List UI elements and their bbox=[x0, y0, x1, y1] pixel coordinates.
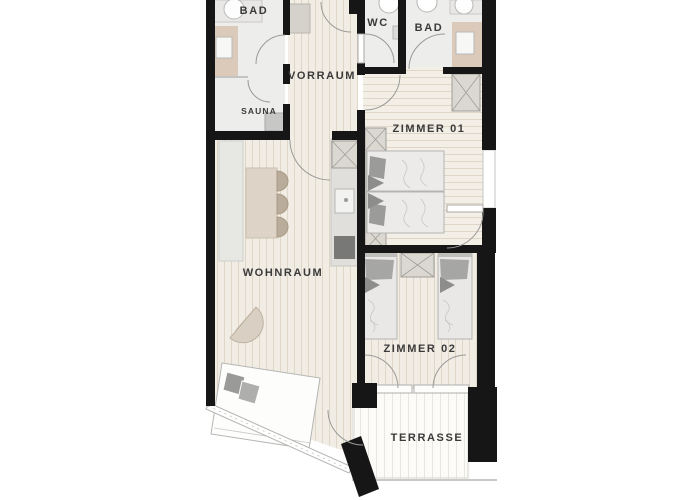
wall-terrace-left bbox=[352, 383, 377, 408]
wardrobe bbox=[452, 74, 480, 111]
wall-left-outer bbox=[206, 0, 215, 406]
shower-fixture bbox=[216, 37, 232, 58]
wall bbox=[283, 0, 290, 35]
nightstand bbox=[365, 128, 386, 151]
single-bed bbox=[438, 253, 472, 339]
door-leaf-wc bbox=[358, 34, 364, 63]
faucet-icon bbox=[344, 198, 348, 202]
wall-hall-living bbox=[206, 131, 288, 140]
kitchen-tall-cabinet bbox=[332, 141, 358, 168]
terrace-window-right bbox=[414, 385, 469, 393]
room-label-bad-2: BAD bbox=[415, 22, 444, 34]
room-label-zimmer-02: ZIMMER 02 bbox=[383, 343, 456, 355]
wall bbox=[443, 67, 483, 74]
wall bbox=[332, 131, 365, 140]
single-bed bbox=[363, 253, 397, 339]
wall bbox=[357, 253, 365, 385]
room-label-terrasse: TERRASSE bbox=[391, 432, 464, 444]
kitchen bbox=[331, 139, 358, 266]
bedroom-1-window bbox=[483, 150, 495, 208]
wall-right-outer bbox=[482, 0, 496, 150]
room-label-zimmer-01: ZIMMER 01 bbox=[392, 123, 465, 135]
room-label-wc: WC bbox=[367, 17, 389, 29]
floor-plan: BAD WC BAD VORRAUM SAUNA ZIMMER 01 WOHNR… bbox=[0, 0, 700, 500]
door-leaf-balcony bbox=[447, 205, 483, 212]
shower-fixture-2 bbox=[456, 32, 474, 54]
wall-right-outer bbox=[482, 208, 496, 250]
wall bbox=[357, 67, 406, 74]
dining-table bbox=[246, 168, 277, 238]
room-label-wohnraum: WOHNRAUM bbox=[243, 267, 324, 279]
floor-plan-page: BAD WC BAD VORRAUM SAUNA ZIMMER 01 WOHNR… bbox=[0, 0, 700, 500]
sink-icon-2 bbox=[455, 0, 473, 14]
room-label-bad-1: BAD bbox=[240, 5, 269, 17]
wall bbox=[349, 0, 365, 14]
wall-right-outer bbox=[477, 250, 495, 387]
room-label-vorraum: VORRAUM bbox=[288, 70, 356, 82]
nightstand bbox=[401, 253, 434, 277]
stove bbox=[334, 236, 355, 259]
room-label-sauna: SAUNA bbox=[241, 106, 277, 116]
double-bed bbox=[362, 150, 444, 233]
wall-terrace-right bbox=[468, 387, 497, 462]
wall-bedrooms bbox=[357, 245, 496, 253]
wall bbox=[357, 14, 365, 34]
bench bbox=[219, 141, 243, 261]
wall-wc-bad bbox=[398, 0, 406, 74]
